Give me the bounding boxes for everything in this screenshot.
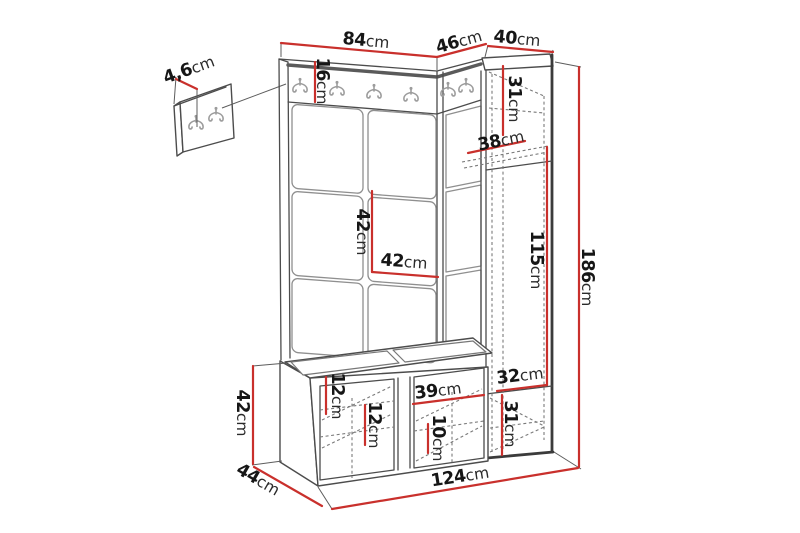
coat-hook-icon xyxy=(293,78,307,92)
upholstered-panel xyxy=(292,278,363,357)
upholstered-panel xyxy=(368,110,436,199)
furniture-dimension-diagram: 84cm 46cm 40cm 4,6cm 16cm 42cm 42cm 31cm… xyxy=(0,0,800,533)
dim-label-12cm-b: 12cm xyxy=(364,402,384,449)
upholstered-panel xyxy=(292,191,363,280)
cabinet-top-shelf xyxy=(486,161,552,170)
diagram-canvas: 84cm 46cm 40cm 4,6cm 16cm 42cm 42cm 31cm… xyxy=(0,0,800,533)
dim-label-31cm-bottom: 31cm xyxy=(500,401,520,448)
dim-label-4-6cm: 4,6cm xyxy=(161,52,218,89)
dim-label-115cm: 115cm xyxy=(526,231,546,290)
upholstered-panel xyxy=(292,104,363,193)
dim-label-186cm: 186cm xyxy=(577,248,597,307)
dim-label-40cm: 40cm xyxy=(493,27,542,51)
coat-hook-icon xyxy=(404,87,418,101)
dim-label-46cm: 46cm xyxy=(434,26,485,58)
dim-label-42cm-vertical: 42cm xyxy=(352,209,372,256)
dim-label-12cm-a: 12cm xyxy=(327,373,347,420)
dim-label-42cm-horizontal: 42cm xyxy=(380,250,428,273)
upholstered-panel xyxy=(446,106,481,188)
dim-label-44cm: 44cm xyxy=(233,460,284,501)
upholstered-panel xyxy=(446,185,481,272)
dim-label-84cm: 84cm xyxy=(342,29,391,53)
dim-label-10cm: 10cm xyxy=(428,415,448,462)
coat-hook-icon xyxy=(367,84,381,98)
top-edge xyxy=(279,59,483,71)
panel-grid-angled xyxy=(446,106,481,352)
cabinet-top-face xyxy=(482,54,553,70)
dim-label-42cm-bench: 42cm xyxy=(232,390,252,437)
coat-hook-icon xyxy=(330,81,344,95)
dim-label-16cm: 16cm xyxy=(312,58,332,105)
cabinet-bottom-edge xyxy=(487,452,553,458)
left-side-edge xyxy=(279,59,290,360)
bench xyxy=(280,338,492,486)
small-wall-hook-panel xyxy=(174,84,286,156)
dim-label-32cm: 32cm xyxy=(495,363,544,389)
cabinet-bottom-shelf xyxy=(486,386,552,394)
dim-label-31cm-top: 31cm xyxy=(504,76,524,123)
coat-hook-icon xyxy=(459,78,473,92)
